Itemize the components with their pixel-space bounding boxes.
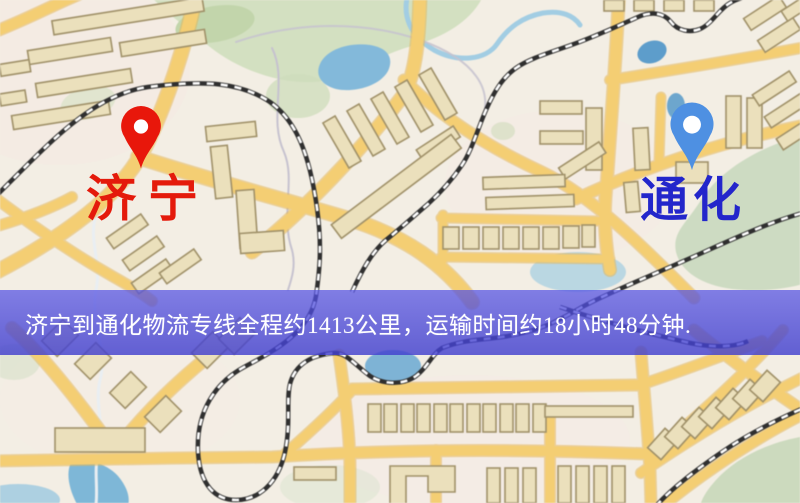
red-location-pin-icon[interactable]: [117, 104, 165, 170]
destination-city-label: 通化: [640, 177, 746, 225]
blue-location-pin-icon[interactable]: [666, 100, 718, 172]
destination-pin-hole: [683, 116, 701, 134]
map-canvas[interactable]: [0, 0, 800, 503]
route-info-banner: 济宁到通化物流专线全程约1413公里，运输时间约18小时48分钟.: [0, 290, 800, 355]
destination-pin-shape: [670, 102, 713, 170]
origin-pin-hole: [134, 119, 148, 133]
route-info-text: 济宁到通化物流专线全程约1413公里，运输时间约18小时48分钟.: [25, 306, 691, 340]
route-map-image: 济宁 通化 济宁到通化物流专线全程约1413公里，运输时间约18小时48分钟.: [0, 0, 800, 503]
origin-city-label: 济宁: [86, 174, 210, 224]
origin-pin-shape: [121, 106, 161, 168]
